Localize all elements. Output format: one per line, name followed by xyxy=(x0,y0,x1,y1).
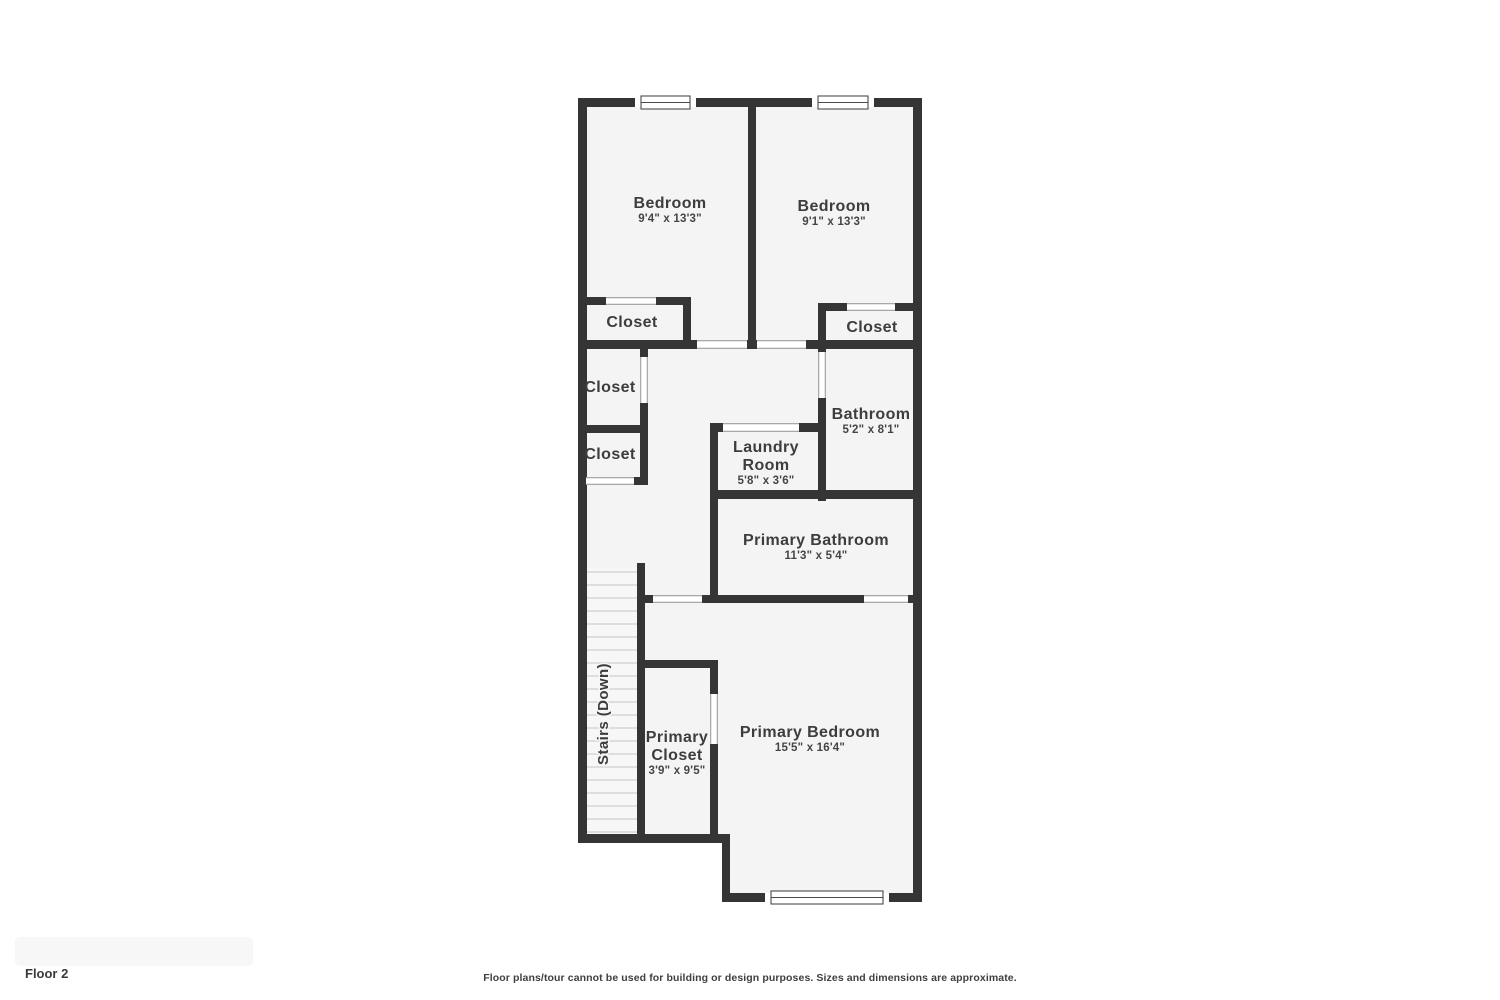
door-opening xyxy=(757,340,806,349)
wall xyxy=(722,834,730,902)
room-label-primary-bathroom: Primary Bathroom xyxy=(743,532,889,549)
wall xyxy=(913,98,922,902)
room-label-closet-hall-lower: Closet xyxy=(584,446,636,463)
room-dims-bathroom: 5'2" x 8'1" xyxy=(843,424,900,436)
wall xyxy=(578,98,587,843)
room-label-bathroom: Bathroom xyxy=(832,406,911,423)
wall xyxy=(748,98,756,349)
wall xyxy=(578,340,922,349)
wall xyxy=(578,834,730,843)
floorplan-page: Bedroom9'4" x 13'3"Bedroom9'1" x 13'3"Cl… xyxy=(0,0,1500,1000)
door-opening xyxy=(697,340,747,349)
watermark-area xyxy=(15,937,253,966)
wall xyxy=(710,660,718,843)
room-dims-primary-closet: 3'9" x 9'5" xyxy=(649,765,706,777)
disclaimer-text: Floor plans/tour cannot be used for buil… xyxy=(0,972,1500,984)
wall xyxy=(637,660,718,668)
room-label-primary-closet: Primary xyxy=(646,729,708,746)
room-label-bedroom-2: Bedroom xyxy=(797,198,870,215)
room-label-closet-bedroom-2: Closet xyxy=(846,319,898,336)
floorplan-drawing: Bedroom9'4" x 13'3"Bedroom9'1" x 13'3"Cl… xyxy=(0,0,1500,1000)
room-dims-laundry-room: 5'8" x 3'6" xyxy=(738,475,795,487)
wall xyxy=(710,490,922,499)
wall xyxy=(818,303,826,501)
wall xyxy=(578,425,648,433)
room-label-closet-bedroom-1: Closet xyxy=(606,314,658,331)
wall xyxy=(710,423,718,603)
room-dims-primary-bathroom: 11'3" x 5'4" xyxy=(785,550,848,562)
room-label-closet-hall-upper: Closet xyxy=(584,379,636,396)
room-label-laundry-room: Laundry xyxy=(733,439,799,456)
room-dims-primary-bedroom: 15'5" x 16'4" xyxy=(775,742,845,754)
room-label-primary-bedroom: Primary Bedroom xyxy=(740,724,880,741)
wall xyxy=(637,563,645,843)
room-label-laundry-room: Room xyxy=(743,457,790,474)
room-label-bedroom-1: Bedroom xyxy=(633,195,706,212)
room-label-primary-closet: Closet xyxy=(651,747,703,764)
room-dims-bedroom-1: 9'4" x 13'3" xyxy=(638,213,702,225)
door-opening xyxy=(723,423,799,432)
room-dims-bedroom-2: 9'1" x 13'3" xyxy=(802,216,866,228)
stairs-label: Stairs (Down) xyxy=(595,663,612,765)
